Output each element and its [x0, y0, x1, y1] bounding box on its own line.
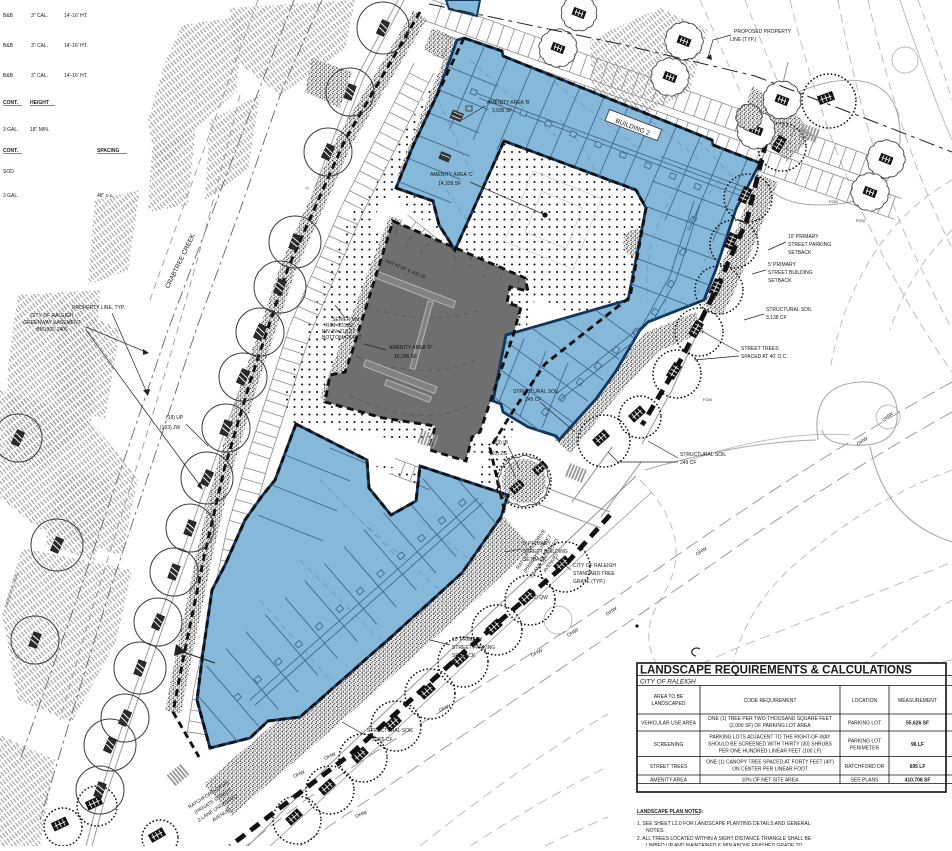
- svg-text:ON CENTER PER LINEAR FOOT: ON CENTER PER LINEAR FOOT: [732, 767, 808, 773]
- svg-text:695 LF: 695 LF: [910, 764, 926, 770]
- svg-text:10% OF NET SITE AREA: 10% OF NET SITE AREA: [742, 778, 800, 784]
- svg-text:10' PRIMARY: 10' PRIMARY: [452, 637, 483, 643]
- svg-text:3 GAL.: 3 GAL.: [3, 193, 19, 199]
- svg-text:AMENITY AREA 'C': AMENITY AREA 'C': [430, 172, 474, 178]
- svg-text:14'-16' HT.: 14'-16' HT.: [64, 13, 88, 19]
- svg-text:PER ONE HUNDRED LINEAR FEET (1: PER ONE HUNDRED LINEAR FEET (100 LF): [719, 749, 822, 755]
- svg-text:STREET BUILDING: STREET BUILDING: [768, 270, 813, 276]
- svg-text:CONT.: CONT.: [3, 100, 19, 106]
- svg-text:(18) UP: (18) UP: [166, 415, 184, 421]
- svg-text:SCREENING: SCREENING: [654, 742, 684, 748]
- svg-text:B&B: B&B: [3, 43, 14, 49]
- svg-text:16,296 SF: 16,296 SF: [394, 354, 417, 360]
- svg-text:VEHICULAR USE AREA: VEHICULAR USE AREA: [641, 721, 697, 727]
- svg-text:(10) ZG: (10) ZG: [490, 451, 507, 457]
- svg-text:STRUCTURAL SOIL: STRUCTURAL SOIL: [513, 389, 559, 395]
- svg-text:LINE (TYP.): LINE (TYP.): [730, 37, 757, 43]
- svg-text:2. ALL TREES LOCATED WITHIN: 2. ALL TREES LOCATED WITHIN A SIGHT DIST…: [637, 836, 812, 842]
- svg-text:3" CAL.: 3" CAL.: [31, 73, 48, 79]
- svg-text:FCM: FCM: [703, 397, 712, 402]
- svg-text:STREET PARKING: STREET PARKING: [788, 242, 831, 248]
- svg-text:PARKING LOT: PARKING LOT: [848, 739, 881, 745]
- svg-text:PROPOSED PROPERTY: PROPOSED PROPERTY: [734, 29, 792, 35]
- svg-text:AREA TO BE: AREA TO BE: [654, 694, 684, 700]
- svg-text:LOCATION: LOCATION: [852, 698, 878, 704]
- svg-text:LANDSCAPE PLAN NOTES:: LANDSCAPE PLAN NOTES:: [637, 809, 704, 815]
- svg-text:3,936 SF: 3,936 SF: [492, 108, 512, 114]
- svg-text:STREET TREES: STREET TREES: [650, 764, 688, 770]
- svg-text:SHOULD BE SCREENED WITH THIRT: SHOULD BE SCREENED WITH THIRTY (30) SHRU…: [708, 742, 833, 748]
- svg-text:1. SEE SHEET L2.0 FOR LANDSC: 1. SEE SHEET L2.0 FOR LANDSCAPE PLANTING…: [637, 821, 811, 827]
- svg-text:14,339 SF: 14,339 SF: [438, 181, 461, 187]
- svg-text:SEE PLANS: SEE PLANS: [851, 778, 879, 784]
- svg-text:(163) JW: (163) JW: [160, 425, 181, 431]
- svg-text:249 CF: 249 CF: [525, 397, 541, 403]
- svg-text:CITY OF RALEIGH: CITY OF RALEIGH: [573, 563, 616, 569]
- svg-text:SPACED AT 40' O.C.: SPACED AT 40' O.C.: [741, 354, 788, 360]
- svg-text:STRUCTURAL SOIL: STRUCTURAL SOIL: [367, 728, 413, 734]
- svg-text:GRATE (TYP.): GRATE (TYP.): [573, 579, 605, 585]
- svg-text:3,138 CF: 3,138 CF: [766, 315, 787, 321]
- svg-text:CONT.: CONT.: [3, 148, 19, 154]
- svg-text:FCM: FCM: [856, 218, 865, 223]
- svg-text:18" MIN.: 18" MIN.: [30, 127, 49, 133]
- svg-text:SETBACK: SETBACK: [452, 653, 476, 659]
- svg-text:3 GAL.: 3 GAL.: [3, 127, 19, 133]
- svg-text:10' PRIMARY: 10' PRIMARY: [788, 234, 819, 240]
- svg-text:PROPERTY LINE, TYP.: PROPERTY LINE, TYP.: [72, 305, 125, 311]
- svg-text:LANDSCAPE REQUIREMENTS & CALCU: LANDSCAPE REQUIREMENTS & CALCULATIONS: [640, 665, 912, 677]
- svg-text:MEASUREMENT: MEASUREMENT: [898, 698, 937, 704]
- svg-text:55,626 SF: 55,626 SF: [906, 721, 929, 727]
- svg-text:BM1992-1406: BM1992-1406: [36, 327, 68, 333]
- svg-text:NOTES.: NOTES.: [646, 828, 665, 834]
- svg-text:LANDSCAPED: LANDSCAPED: [652, 701, 686, 707]
- svg-text:48" o.c.: 48" o.c.: [97, 193, 114, 199]
- svg-text:3" CAL.: 3" CAL.: [31, 43, 48, 49]
- svg-text:B&B: B&B: [3, 73, 14, 79]
- svg-text:249 CF: 249 CF: [680, 460, 696, 466]
- svg-text:(22) QW: (22) QW: [529, 595, 548, 601]
- svg-text:RATCHFORD DR: RATCHFORD DR: [845, 764, 885, 770]
- svg-text:STRUCTURAL SOIL: STRUCTURAL SOIL: [766, 307, 812, 313]
- svg-text:SETBACK: SETBACK: [768, 278, 792, 284]
- svg-text:PARKING LOTS ADJACENT TO THE R: PARKING LOTS ADJACENT TO THE RIGHT-OF-WA…: [709, 735, 831, 741]
- svg-text:STANDARD TREE: STANDARD TREE: [573, 571, 615, 577]
- svg-text:SOD: SOD: [3, 169, 14, 175]
- svg-text:B&B: B&B: [3, 13, 14, 19]
- svg-text:AMENITY AREA: AMENITY AREA: [650, 778, 688, 784]
- svg-text:PARKING LOT: PARKING LOT: [848, 721, 881, 727]
- svg-text:AMENITY AREA 'B': AMENITY AREA 'B': [487, 100, 530, 106]
- svg-text:STREET TREES: STREET TREES: [741, 346, 779, 352]
- svg-text:5' PRIMARY: 5' PRIMARY: [768, 262, 796, 268]
- svg-text:CITY OF RALEIGH: CITY OF RALEIGH: [31, 313, 74, 319]
- svg-text:PERIMETER: PERIMETER: [850, 746, 880, 752]
- svg-text:(2,000 SF) OF PARKING LOT AREA: (2,000 SF) OF PARKING LOT AREA: [729, 723, 811, 729]
- svg-text:CODE REQUIREMENT: CODE REQUIREMENT: [744, 698, 797, 704]
- svg-text:3" CAL.: 3" CAL.: [31, 13, 48, 19]
- svg-text:ONE (1) TREE PER TWO-THOUSAND: ONE (1) TREE PER TWO-THOUSAND SQUARE FEE…: [708, 716, 832, 722]
- svg-text:CITY OF RALEIGH: CITY OF RALEIGH: [640, 679, 696, 686]
- svg-text:FCM: FCM: [829, 199, 838, 204]
- svg-text:410,708 SF: 410,708 SF: [905, 778, 931, 784]
- svg-text:HEIGHT: HEIGHT: [30, 100, 49, 106]
- svg-text:96 LF: 96 LF: [911, 742, 924, 748]
- svg-text:BOTTOM=214.27: BOTTOM=214.27: [322, 335, 362, 341]
- svg-text:GREENWAY EASEMENT: GREENWAY EASEMENT: [23, 320, 80, 326]
- svg-text:STREET PARKING: STREET PARKING: [452, 645, 495, 651]
- svg-text:14'-16' HT.: 14'-16' HT.: [64, 43, 88, 49]
- svg-text:ONE (1) CANOPY TREE SPACED AT: ONE (1) CANOPY TREE SPACED AT FORTY FEET…: [706, 760, 834, 766]
- svg-text:SETBACK: SETBACK: [788, 250, 812, 256]
- svg-text:5,965 CF: 5,965 CF: [372, 737, 393, 743]
- svg-text:(29) IB: (29) IB: [493, 440, 509, 446]
- svg-text:STRUCTURAL SOIL: STRUCTURAL SOIL: [680, 452, 726, 458]
- svg-text:14'-16' HT.: 14'-16' HT.: [64, 73, 88, 79]
- svg-text:SPACING: SPACING: [97, 148, 120, 154]
- svg-text:AMENITY AREA 'D': AMENITY AREA 'D': [389, 345, 433, 351]
